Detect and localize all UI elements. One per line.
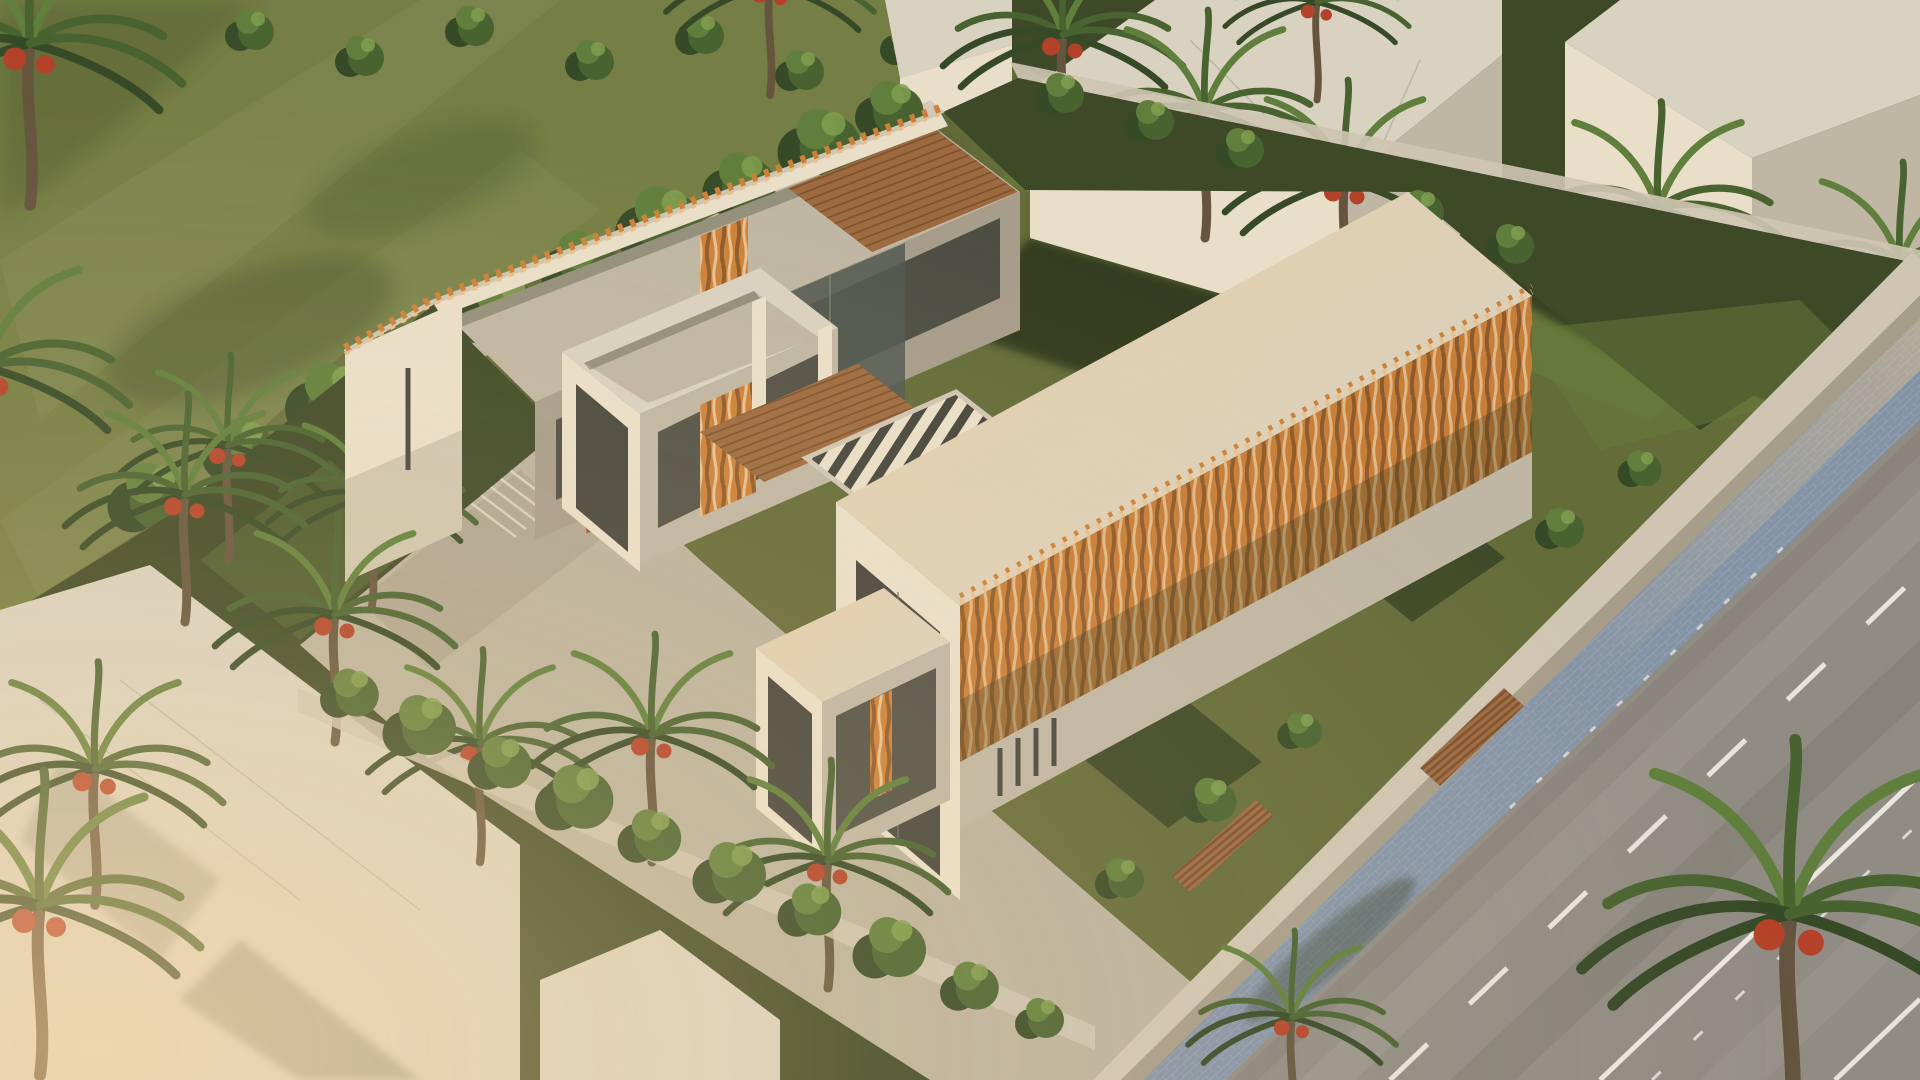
sunlight-haze [0, 0, 1920, 1080]
aerial-render: Aerial golden-hour rendering of a modern… [0, 0, 1920, 1080]
scene-canvas [0, 0, 1920, 1080]
